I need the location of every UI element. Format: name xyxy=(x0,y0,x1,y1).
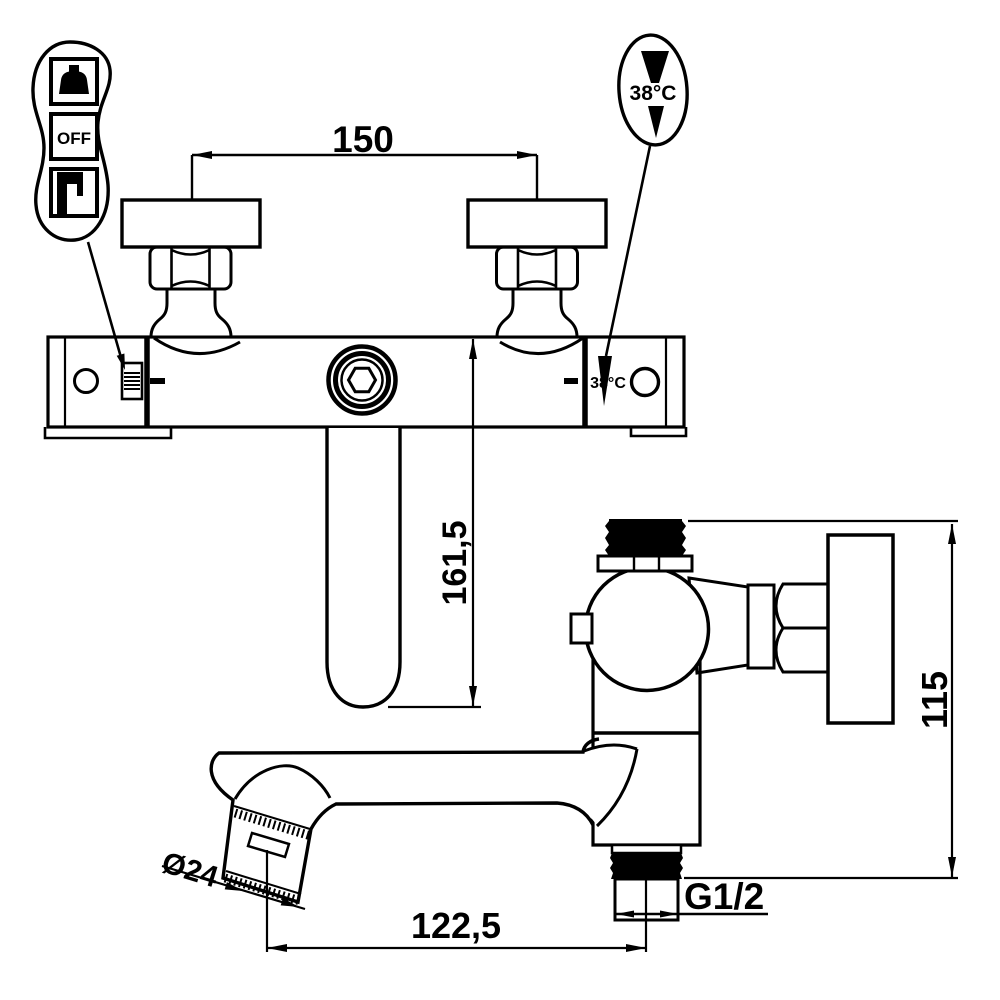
thread-label: G1/2 xyxy=(684,876,764,917)
dim-122-5: 122,5 xyxy=(267,850,646,952)
wall-union-neck xyxy=(748,585,774,668)
outlet-thread-ring xyxy=(610,853,683,879)
dim-122-5-label: 122,5 xyxy=(411,905,501,946)
index-dash-left xyxy=(150,378,165,384)
side-view: 115 xyxy=(158,519,958,952)
temp-leader-line xyxy=(606,146,650,356)
drawing-svg: 150 xyxy=(0,0,1000,1000)
escutcheon-right xyxy=(468,200,606,247)
escutcheon-left xyxy=(122,200,260,247)
escutcheon-side xyxy=(828,535,893,723)
aerator-insert xyxy=(248,833,289,857)
mode-callout: OFF xyxy=(33,42,125,370)
inlet-left xyxy=(122,200,260,354)
spout-front xyxy=(327,428,400,707)
dim-150: 150 xyxy=(192,119,537,199)
off-label: OFF xyxy=(57,129,91,148)
body-circle xyxy=(586,568,709,691)
arrow-left xyxy=(192,151,212,159)
nipple-shoulder xyxy=(598,556,692,571)
wall-hex-nut-side xyxy=(776,584,831,672)
inlet-right xyxy=(468,200,606,354)
temp-callout-label: 38°C xyxy=(630,82,677,105)
index-dash-right xyxy=(564,378,578,384)
dim-161-5-label: 161,5 xyxy=(436,520,474,605)
shower-outlet-thread xyxy=(605,519,686,556)
wall-plate-left xyxy=(45,427,171,438)
dim-o24-label: Ø24 xyxy=(158,846,222,894)
spout-dome-crest xyxy=(235,766,330,799)
technical-drawing-faucet: 150 xyxy=(0,0,1000,1000)
dim-115: 115 xyxy=(684,521,958,878)
arrow-right xyxy=(517,151,537,159)
dim-150-label: 150 xyxy=(332,119,394,160)
body-side-tab xyxy=(571,614,592,643)
dim-115-label: 115 xyxy=(914,671,955,729)
